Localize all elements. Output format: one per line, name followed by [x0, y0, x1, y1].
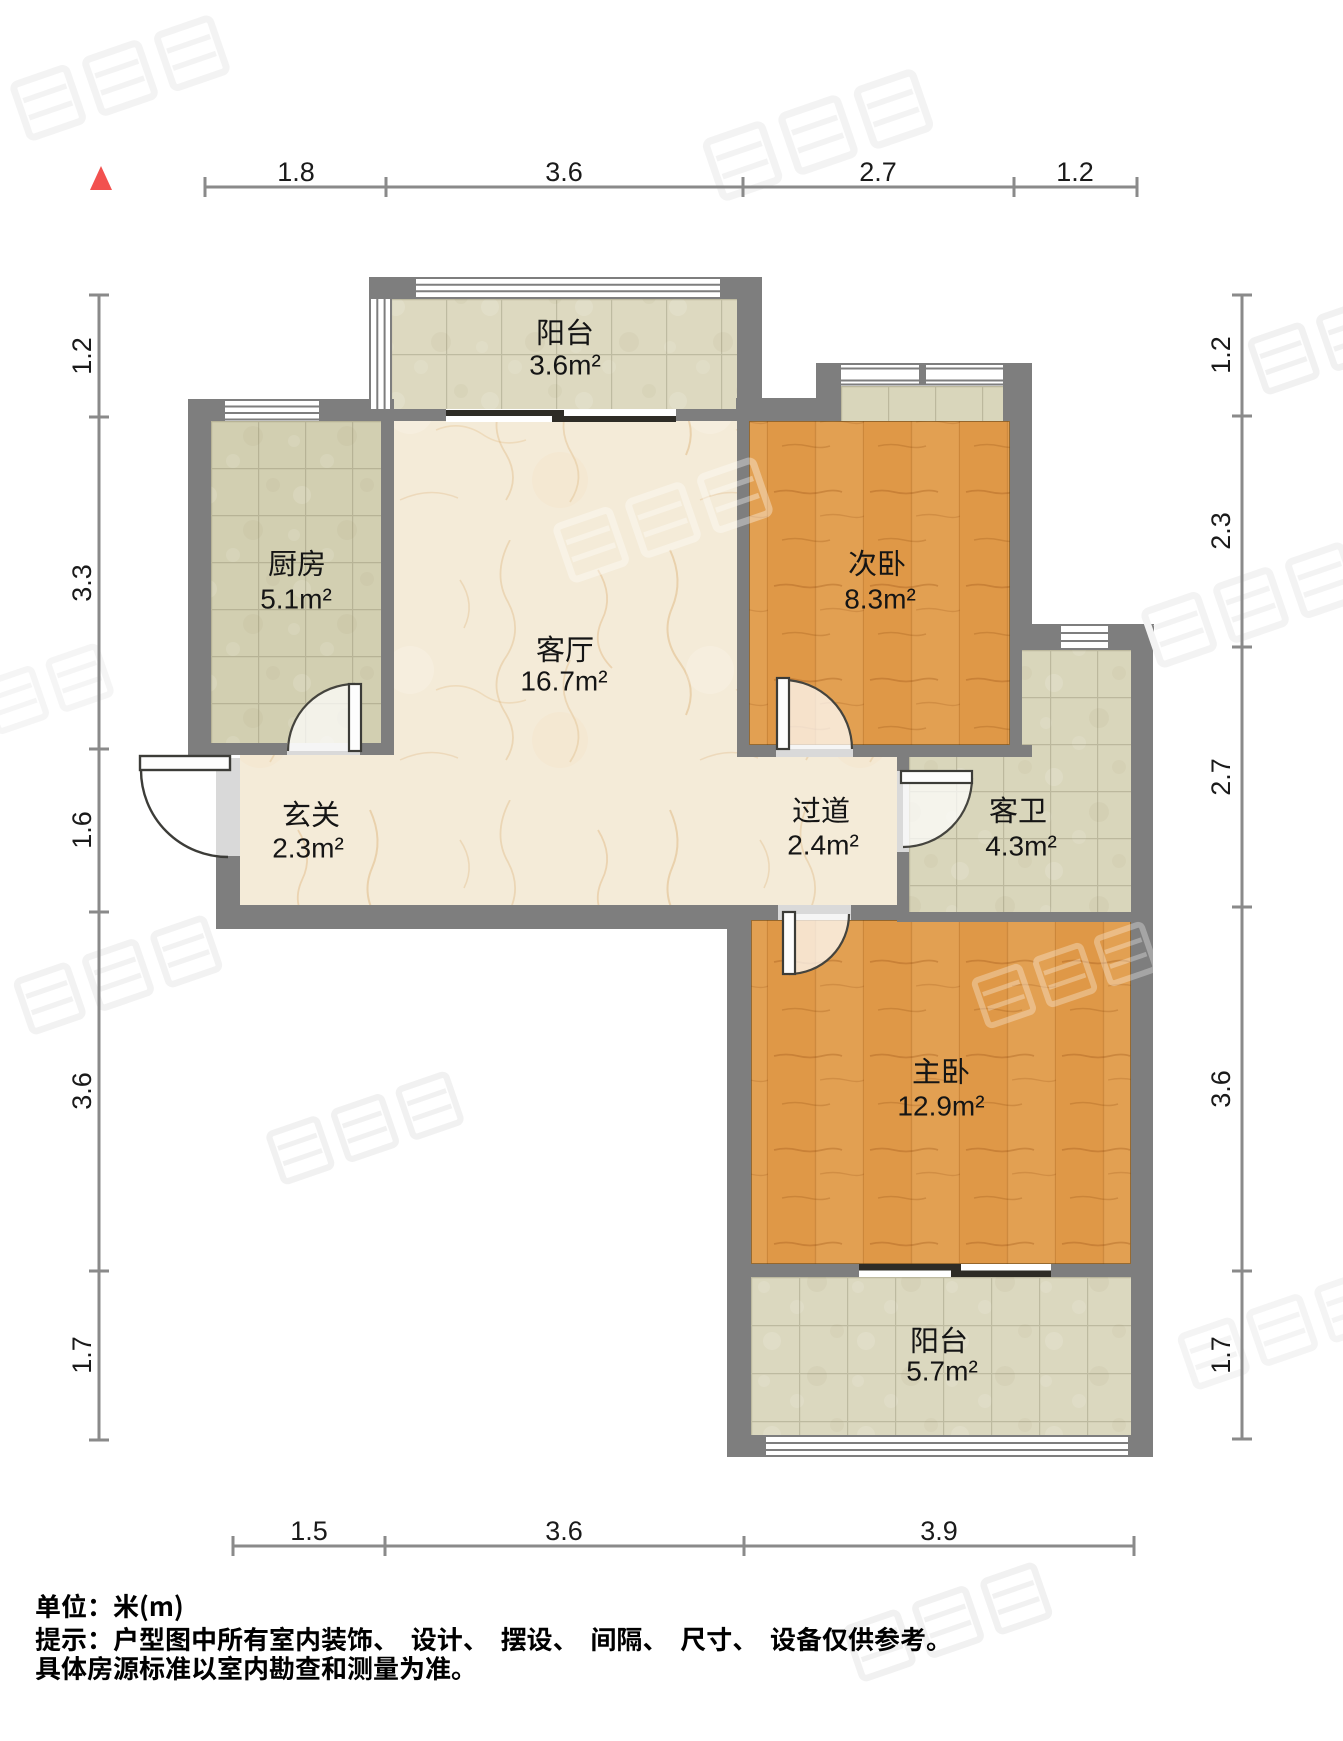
svg-text:1.7: 1.7	[67, 1336, 97, 1374]
svg-text:2.3: 2.3	[1206, 512, 1236, 550]
svg-text:8.3m²: 8.3m²	[844, 584, 916, 615]
svg-text:1.6: 1.6	[67, 811, 97, 849]
svg-text:5.7m²: 5.7m²	[906, 1356, 978, 1387]
svg-text:1.7: 1.7	[1206, 1336, 1236, 1374]
svg-text:3.9: 3.9	[920, 1516, 958, 1546]
svg-text:1.2: 1.2	[1206, 336, 1236, 374]
svg-text:3.6: 3.6	[545, 1516, 583, 1546]
svg-text:3.6m²: 3.6m²	[529, 350, 601, 381]
svg-text:12.9m²: 12.9m²	[897, 1091, 984, 1122]
svg-text:3.6: 3.6	[67, 1072, 97, 1110]
svg-text:2.3m²: 2.3m²	[272, 833, 344, 864]
svg-text:16.7m²: 16.7m²	[520, 666, 607, 697]
svg-text:2.7: 2.7	[859, 157, 897, 187]
svg-text:5.1m²: 5.1m²	[260, 584, 332, 615]
svg-text:2.4m²: 2.4m²	[787, 830, 859, 861]
svg-text:1.2: 1.2	[67, 337, 97, 375]
svg-text:3.3: 3.3	[67, 564, 97, 602]
svg-text:3.6: 3.6	[545, 157, 583, 187]
svg-text:1.5: 1.5	[290, 1516, 328, 1546]
svg-text:4.3m²: 4.3m²	[985, 831, 1057, 862]
svg-text:1.2: 1.2	[1056, 157, 1094, 187]
svg-text:3.6: 3.6	[1206, 1070, 1236, 1108]
svg-text:1.8: 1.8	[277, 157, 315, 187]
svg-text:2.7: 2.7	[1206, 758, 1236, 796]
